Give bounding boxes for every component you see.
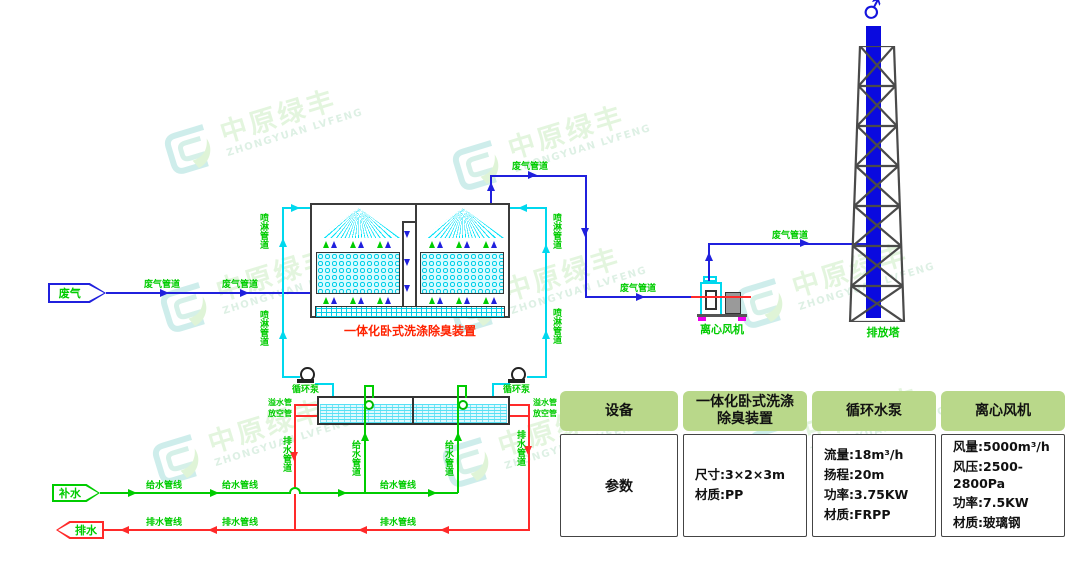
spec-line: 风压:2500-2800Pa — [953, 459, 1064, 493]
overflow-pipe — [510, 404, 530, 406]
packing-bed — [316, 252, 400, 294]
spec-line: 材质:FRPP — [824, 507, 935, 524]
flow-arrow — [518, 204, 527, 212]
header-text: 离心风机 — [975, 403, 1031, 420]
gas-pipe-label: 废气管道 — [620, 285, 656, 294]
table-header-fan: 离心风机 — [941, 391, 1065, 431]
table-cell-scrubber-specs: 尺寸:3×2×3m 材质:PP — [683, 434, 807, 537]
flow-arrow — [120, 526, 129, 534]
flow-arrow — [528, 171, 537, 179]
flow-arrow — [331, 241, 337, 248]
mesh-layer — [315, 306, 505, 318]
spray-pipe — [527, 376, 547, 378]
drain-pipe-label: 排水管道 — [515, 430, 524, 482]
scrubber-unit — [310, 203, 510, 318]
gas-pipe-label: 废气管道 — [512, 163, 548, 172]
packing-bed — [420, 252, 504, 294]
flow-arrow — [210, 489, 219, 497]
spec-line: 扬程:20m — [824, 467, 935, 484]
spec-line: 风量:5000m³/h — [953, 439, 1064, 456]
flow-arrow — [524, 446, 532, 455]
flow-arrow — [358, 526, 367, 534]
table-cell-fan-specs: 风量:5000m³/h 风压:2500-2800Pa 功率:7.5KW 材质:玻… — [941, 434, 1065, 537]
gas-pipe — [708, 243, 867, 245]
gas-pipe — [708, 244, 710, 281]
flow-arrow — [581, 228, 589, 237]
watermark-text: 中原绿丰 ZHONGYUAN LVFENG — [501, 237, 649, 317]
flow-arrow — [705, 252, 713, 261]
drain-pipe — [528, 404, 530, 531]
flow-arrow — [429, 297, 435, 304]
flow-arrow — [542, 330, 550, 339]
spray-nozzle-icon — [318, 208, 400, 238]
flow-arrow — [437, 297, 443, 304]
flow-arrow — [361, 432, 369, 441]
vent-pipe — [510, 415, 530, 417]
spec-lines: 尺寸:3×2×3m 材质:PP — [684, 435, 806, 536]
gas-pipe-label: 废气管道 — [772, 232, 808, 241]
equipment-parameter-table: 设备 一体化卧式洗涤 除臭装置 循环水泵 离心风机 参数 尺寸:3×2×3m 材… — [560, 391, 1065, 537]
spray-nozzle-icon — [422, 208, 504, 238]
zhongyuan-lufeng-logo-icon — [445, 135, 511, 197]
drain-label: 排水 — [68, 521, 104, 539]
spray-pipe — [510, 207, 547, 209]
flow-arrow — [290, 452, 298, 461]
spec-line: 功率:3.75KW — [824, 487, 935, 504]
flow-arrow — [323, 241, 329, 248]
tower-label: 排放塔 — [855, 324, 911, 340]
overflow-pipe-label: 溢水管 — [268, 399, 292, 407]
spray-pipe-label: 喷淋管道 — [258, 213, 267, 265]
float-valve-icon — [458, 400, 468, 410]
waste-gas-inlet-node: 废气 — [48, 283, 106, 303]
flow-arrow — [279, 330, 287, 339]
drain-node: 排水 — [56, 521, 104, 539]
spray-pipe — [282, 376, 300, 378]
supply-line-label: 给水管线 — [380, 482, 416, 491]
spec-lines: 风量:5000m³/h 风压:2500-2800Pa 功率:7.5KW 材质:玻… — [942, 435, 1064, 536]
supply-pipe — [465, 385, 467, 398]
flow-arrow — [464, 297, 470, 304]
spec-lines: 流量:18m³/h 扬程:20m 功率:3.75KW 材质:FRPP — [813, 435, 935, 536]
supply-line-label: 给水管线 — [146, 482, 182, 491]
flow-arrow — [323, 297, 329, 304]
flow-arrow — [404, 259, 410, 266]
fan-shaft-line — [691, 296, 751, 298]
watermark-cn: 中原绿丰 — [217, 79, 362, 149]
supply-pipe-label: 给水管道 — [350, 440, 359, 492]
flow-arrow — [338, 489, 347, 497]
vent-pipe — [295, 415, 317, 417]
row-label: 参数 — [605, 476, 633, 496]
flow-arrow — [404, 231, 410, 238]
watermark: 中原绿丰 ZHONGYUAN LVFENG — [157, 75, 365, 180]
waste-gas-label: 废气 — [48, 283, 92, 303]
pump-base — [508, 379, 525, 383]
gas-pipe — [106, 292, 310, 294]
drain-pipe-label: 排水管道 — [281, 436, 290, 488]
header-text: 除臭装置 — [717, 411, 773, 428]
flow-arrow — [464, 241, 470, 248]
supply-pipe-label: 给水管道 — [443, 440, 452, 492]
spray-pipe-label: 喷淋管道 — [551, 308, 560, 360]
wind-vane-icon: ♂ — [858, 0, 887, 27]
process-flow-diagram: 中原绿丰 ZHONGYUAN LVFENG 中原绿丰 ZHONGYUAN LVF… — [0, 0, 1074, 561]
flow-arrow — [377, 297, 383, 304]
watermark-cn: 中原绿丰 — [505, 95, 650, 165]
spray-pipe-label: 喷淋管道 — [551, 213, 560, 265]
flow-arrow — [350, 297, 356, 304]
drain-line-label: 排水管线 — [222, 519, 258, 528]
flow-arrow — [483, 241, 489, 248]
spec-line: 材质:玻璃钢 — [953, 515, 1064, 532]
table-cell-pump-specs: 流量:18m³/h 扬程:20m 功率:3.75KW 材质:FRPP — [812, 434, 936, 537]
fan-volute — [705, 290, 717, 310]
overflow-pipe-label: 溢水管 — [533, 399, 557, 407]
flow-arrow — [160, 289, 169, 297]
flow-arrow — [404, 285, 410, 292]
centrifugal-fan-icon — [695, 274, 751, 322]
makeup-water-node: 补水 — [52, 484, 100, 502]
fan-label: 离心风机 — [692, 321, 752, 337]
flow-arrow — [377, 241, 383, 248]
flow-arrow — [491, 297, 497, 304]
watermark-en: ZHONGYUAN LVFENG — [226, 107, 365, 159]
flow-arrow — [428, 489, 437, 497]
partition — [402, 221, 416, 223]
pump-label: 循环泵 — [292, 386, 319, 395]
flow-arrow — [491, 241, 497, 248]
flow-arrow — [456, 297, 462, 304]
drain-line-label: 排水管线 — [146, 519, 182, 528]
spec-line: 功率:7.5KW — [953, 495, 1064, 512]
flow-arrow — [331, 297, 337, 304]
scrubber-label: 一体化卧式洗涤除臭装置 — [330, 322, 490, 339]
header-text: 设备 — [605, 403, 633, 420]
flow-arrow — [350, 241, 356, 248]
table-cell-row-label: 参数 — [560, 434, 678, 537]
makeup-water-label: 补水 — [52, 484, 88, 502]
supply-line-label: 给水管线 — [222, 482, 258, 491]
spec-line: 流量:18m³/h — [824, 447, 935, 464]
header-text: 循环水泵 — [846, 403, 902, 420]
flow-arrow — [542, 244, 550, 253]
flow-arrow — [454, 432, 462, 441]
table-header-pump: 循环水泵 — [812, 391, 936, 431]
tower-lattice — [845, 46, 909, 322]
watermark-text: 中原绿丰 ZHONGYUAN LVFENG — [217, 79, 365, 159]
vent-pipe-label: 放空管 — [533, 410, 557, 418]
watermark: 中原绿丰 ZHONGYUAN LVFENG — [445, 91, 653, 196]
table-header-equipment: 设备 — [560, 391, 678, 431]
tank-divider — [412, 398, 414, 423]
flow-arrow — [636, 293, 645, 301]
flow-arrow — [128, 489, 137, 497]
spray-pipe-label: 喷淋管道 — [258, 310, 267, 362]
overflow-pipe — [295, 404, 317, 406]
flow-arrow — [385, 241, 391, 248]
flow-arrow — [240, 289, 249, 297]
header-text: 一体化卧式洗涤 — [696, 394, 794, 411]
gas-pipe — [490, 175, 587, 177]
supply-pipe — [372, 385, 374, 398]
flow-arrow — [437, 241, 443, 248]
gas-pipe-label: 废气管道 — [144, 281, 180, 290]
gas-pipe-label: 废气管道 — [222, 281, 258, 290]
pump-label: 循环泵 — [503, 386, 530, 395]
flow-arrow — [385, 297, 391, 304]
flow-arrow — [487, 182, 495, 191]
flow-arrow — [440, 526, 449, 534]
drain-pipe — [294, 404, 296, 531]
spec-line: 尺寸:3×2×3m — [695, 467, 806, 484]
pump-base — [297, 379, 314, 383]
vent-pipe-label: 放空管 — [268, 410, 292, 418]
flow-arrow — [358, 297, 364, 304]
flow-arrow — [279, 238, 287, 247]
flow-arrow — [358, 241, 364, 248]
drain-line-label: 排水管线 — [380, 519, 416, 528]
flow-arrow — [291, 204, 300, 212]
spray-pipe — [545, 207, 547, 378]
flow-arrow — [456, 241, 462, 248]
spray-pipe — [282, 207, 284, 378]
flow-arrow — [429, 241, 435, 248]
flow-arrow — [483, 297, 489, 304]
flow-arrow — [208, 526, 217, 534]
table-header-scrubber: 一体化卧式洗涤 除臭装置 — [683, 391, 807, 431]
zhongyuan-lufeng-logo-icon — [157, 119, 223, 181]
drain-line — [104, 529, 530, 531]
pipe-crossing-bridge — [289, 487, 301, 494]
spec-line: 材质:PP — [695, 487, 806, 504]
